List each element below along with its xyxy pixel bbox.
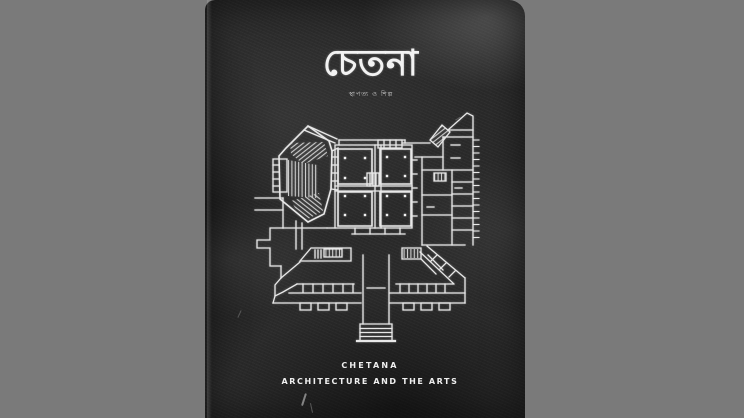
scratch-mark [237,310,241,318]
book-cover: চেতনা স্থাপত্য ও শিল্প [205,0,525,418]
letterbox-right [525,0,744,418]
floor-plan-illustration [253,112,495,345]
screenshot-stage: চেতনা স্থাপত্য ও শিল্প [0,0,744,418]
masthead-title: চেতনা [205,44,537,84]
footer-subtitle: ARCHITECTURE AND THE ARTS [205,377,535,386]
masthead-subtitle: স্থাপত্য ও শিল্প [205,89,537,100]
letterbox-left [0,0,205,418]
footer-title: CHETANA [205,361,535,370]
scratch-mark [301,393,306,406]
scratch-mark [310,403,313,413]
